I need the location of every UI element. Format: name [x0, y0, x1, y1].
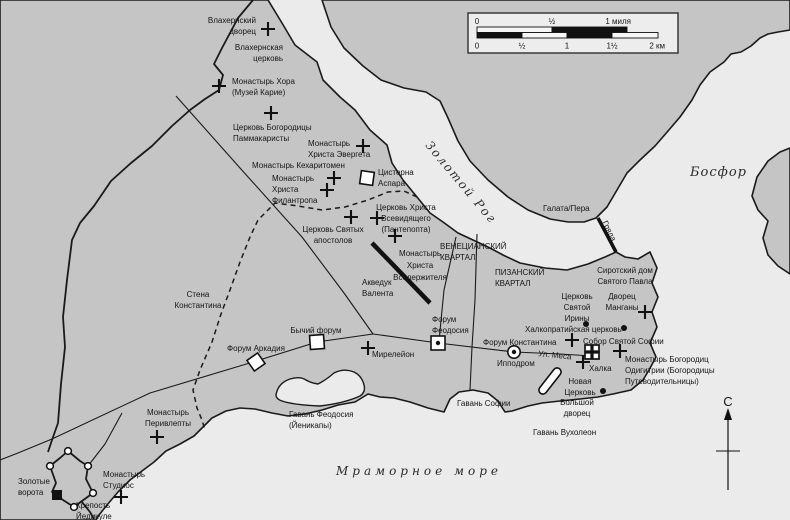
- map-label-pisan-quarter: ПИЗАНСКИЙ: [495, 268, 545, 277]
- map-label-sophia-harbor: Гавань Софии: [457, 399, 511, 408]
- map-label-holy-apostles-church: апостолов: [314, 236, 353, 245]
- map-label-pantepoptes-church: Всевидящего: [381, 214, 431, 223]
- scale-mi-seg1: [477, 27, 552, 33]
- map-label-aqueduct-valens: Акведук: [362, 278, 392, 287]
- map-label-peribleptos-monastery: Монастырь: [147, 408, 189, 417]
- map-label-constantine-wall: Константина: [175, 301, 223, 310]
- map-label-peribleptos-monastery: Перивлепты: [145, 419, 191, 428]
- map-label-mangana-palace: Манганы: [606, 303, 639, 312]
- map-label-bull-forum: Бычий форум: [290, 326, 341, 335]
- map-label-venetian-quarter: КВАРТАЛ: [440, 253, 475, 262]
- map-label-vlakhernsky-palace: Влахернский: [208, 16, 256, 25]
- map-label-evergetes-monastery: Монастырь: [308, 139, 350, 148]
- map-label-great-palace: Большой: [560, 398, 594, 407]
- map-label-nea-church: Церковь: [564, 388, 595, 397]
- map-label-hippodrome: Ипподром: [497, 359, 535, 368]
- map-label-st-irene-church: Святой: [564, 303, 591, 312]
- map-label-studios-monastery: Студиос: [103, 481, 134, 490]
- map-label-pantepoptes-church: (Пантепопта): [381, 225, 430, 234]
- map-label-philanthropos-monastery: Христа: [272, 185, 299, 194]
- marker-forum-constantine: [512, 350, 516, 354]
- scale-km-seg3: [567, 33, 612, 39]
- map-label-orphanage-st-paul: Святого Павла: [597, 277, 653, 286]
- map-label-nea-church: Новая: [568, 377, 591, 386]
- map-label-chalkoprateia-church: Халкопратийская церковь: [525, 325, 622, 334]
- map-label-aqueduct-valens: Валента: [362, 289, 394, 298]
- map-label-evergetes-monastery: Христа Эвергета: [308, 150, 371, 159]
- scale-mi-1: 1 миля: [605, 17, 631, 26]
- map-label-hodegetria-monastery: Одигитрии (Богородицы: [625, 366, 715, 375]
- map-label-bosphorus: Босфор: [689, 165, 747, 180]
- map-label-chora-monastery: (Музей Карие): [232, 88, 286, 97]
- map-label-pantepoptes-church: Церковь Христа: [376, 203, 436, 212]
- map-label-orphanage-st-paul: Сиротский дом: [597, 266, 653, 275]
- map-label-hodegetria-monastery: Путеводительницы): [625, 377, 699, 386]
- map-label-hagia-sophia: Собор Святой Софии: [583, 337, 664, 346]
- map-label-theodosius-forum: Форум: [432, 315, 456, 324]
- map-label-philanthropos-monastery: Филантропа: [272, 196, 318, 205]
- scale-mi-0: 0: [475, 17, 480, 26]
- scale-km-1: 1: [565, 42, 570, 51]
- map-label-studios-monastery: Монастырь: [103, 470, 145, 479]
- map-label-holy-apostles-church: Церковь Святых: [302, 225, 363, 234]
- map-label-yedikule-fortress: Йедикуле: [76, 512, 112, 520]
- map-label-yedikule-fortress: Крепость: [76, 501, 110, 510]
- map-label-pisan-quarter: КВАРТАЛ: [495, 279, 530, 288]
- map-label-st-irene-church: Церковь: [561, 292, 592, 301]
- marker-fortress-tower: [47, 463, 54, 470]
- marker-bull-forum: [310, 335, 325, 350]
- map-label-pantokrator-monastery: Христа: [407, 261, 434, 270]
- map-label-st-irene-church: Ирины: [565, 314, 590, 323]
- scale-km-1half: 1½: [606, 42, 617, 51]
- map-label-chalke: Халка: [589, 364, 612, 373]
- scale-mi-seg2: [552, 27, 627, 33]
- map-label-theodosius-forum: Феодосия: [432, 326, 469, 335]
- marker-fortress-tower: [65, 448, 72, 455]
- map-label-bucoleon-harbor: Гавань Вухолеон: [533, 428, 596, 437]
- map-label-theodosius-harbor: (Йеникапы): [289, 421, 332, 430]
- marker-fortress-tower: [90, 490, 97, 497]
- map-label-pammakaristos-church: Паммакаристы: [233, 134, 289, 143]
- map-label-vlakhernskaya-church: церковь: [253, 54, 283, 63]
- map-label-marmara-sea: Мраморное море: [335, 464, 502, 478]
- scale-mi-half: ½: [549, 17, 556, 26]
- map-label-theodosius-harbor: Гавань Феодосия: [289, 410, 353, 419]
- scale-km-seg4: [612, 33, 658, 39]
- marker-chalkoprateia-church: [621, 325, 627, 331]
- map-label-cisterna-aspar: Цистерна: [378, 168, 414, 177]
- map-label-golden-gate: Золотые: [18, 477, 51, 486]
- map-label-golden-gate: ворота: [18, 488, 44, 497]
- map-label-vlakhernsky-palace: дворец: [229, 27, 256, 36]
- map-label-arcadius-forum: Форум Аркадия: [227, 344, 285, 353]
- map-label-pantokrator-monastery: Монастырь: [399, 249, 441, 258]
- map-label-vlakhernskaya-church: Влахернская: [235, 43, 283, 52]
- marker-nea-church: [600, 388, 606, 394]
- map-label-great-palace: дворец: [564, 409, 591, 418]
- map-label-galata-pera: Галата/Пера: [543, 204, 590, 213]
- map-label-pantokrator-monastery: Вседержителя: [393, 273, 447, 282]
- map-label-myrelaion: Мирелейон: [372, 350, 414, 359]
- marker-cisterna-aspar: [360, 171, 375, 186]
- map-label-kecharitomene-monastery: Монастырь Кехаритомен: [252, 161, 345, 170]
- scale-km-seg2: [522, 33, 567, 39]
- map-label-chora-monastery: Монастырь Хора: [232, 77, 295, 86]
- compass-north-label: С: [723, 394, 732, 409]
- scale-km-seg1: [477, 33, 522, 39]
- marker-fortress-tower: [85, 463, 92, 470]
- marker-theodosius-forum: [436, 341, 440, 345]
- map-label-forum-constantine: Форум Константина: [483, 338, 557, 347]
- map-label-cisterna-aspar: Аспара: [378, 179, 406, 188]
- map-canvas: 0 ½ 1 миля 0 ½ 1 1½ 2 км С Влахернскийдв…: [0, 0, 790, 520]
- scale-km-0: 0: [475, 42, 480, 51]
- marker-yedikule-marker: [52, 490, 62, 500]
- map-label-philanthropos-monastery: Монастырь: [272, 174, 314, 183]
- map-label-pammakaristos-church: Церковь Богородицы: [233, 123, 312, 132]
- map-label-constantine-wall: Стена: [187, 290, 210, 299]
- scale-km-2: 2 км: [649, 42, 665, 51]
- scale-km-half: ½: [519, 42, 526, 51]
- constantinople-map: 0 ½ 1 миля 0 ½ 1 1½ 2 км С Влахернскийдв…: [0, 0, 790, 520]
- map-label-hodegetria-monastery: Монастырь Богородиц: [625, 355, 709, 364]
- scale-bar: 0 ½ 1 миля 0 ½ 1 1½ 2 км: [468, 13, 678, 53]
- map-label-venetian-quarter: ВЕНЕЦИАНСКИЙ: [440, 242, 507, 251]
- map-label-mangana-palace: Дворец: [608, 292, 636, 301]
